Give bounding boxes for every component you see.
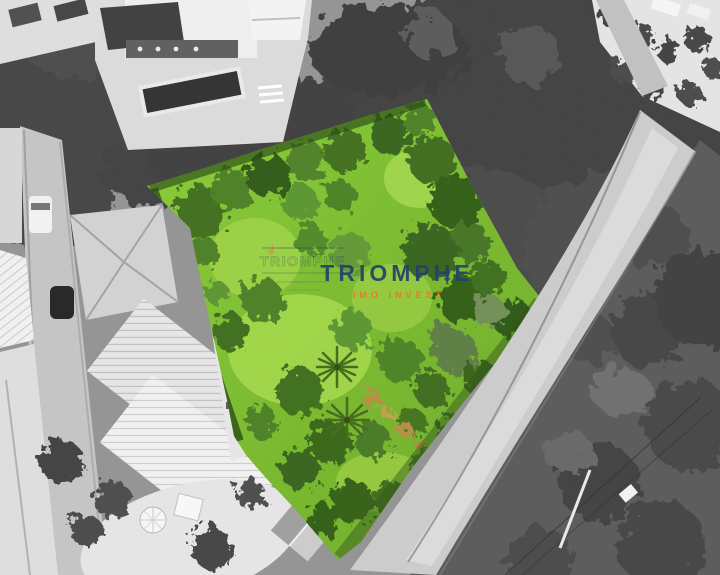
photo-grain-overlay	[0, 0, 720, 575]
aerial-photo: TRIOMPHE TRIOMPHE IMO INVEST	[0, 0, 720, 575]
aerial-photo-canvas: TRIOMPHE TRIOMPHE IMO INVEST	[0, 0, 720, 575]
